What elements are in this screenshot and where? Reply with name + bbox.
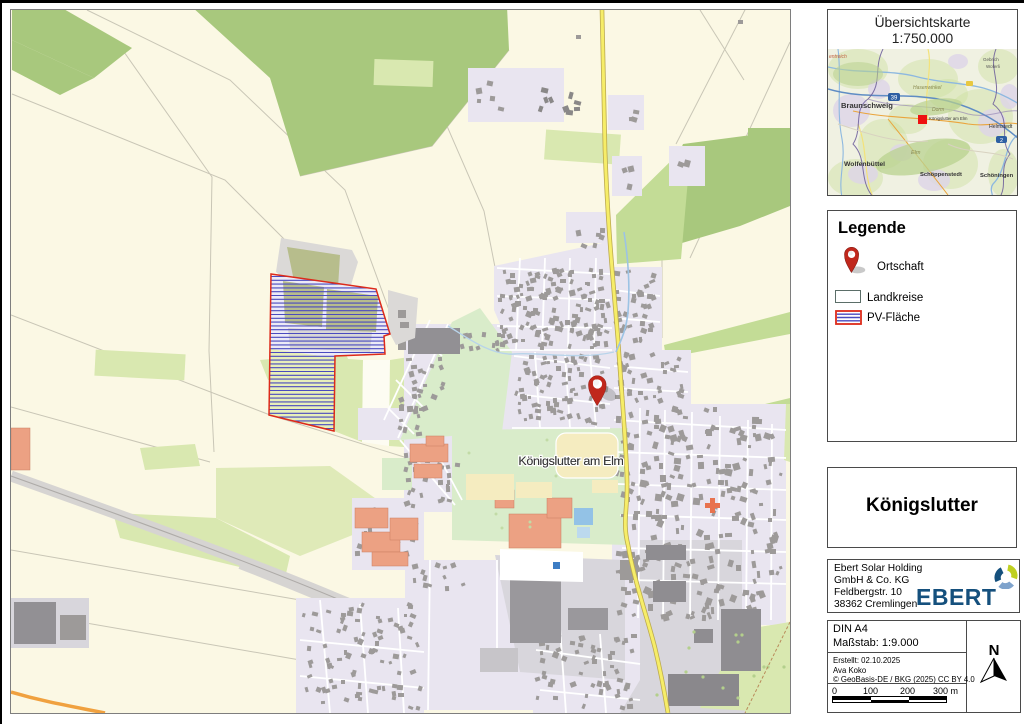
svg-text:Helmstedt: Helmstedt [989,124,1013,130]
svg-text:2: 2 [1000,138,1003,144]
svg-text:Hasenwinkel: Hasenwinkel [913,85,942,91]
svg-text:Königslutter am Elm: Königslutter am Elm [929,116,968,121]
svg-text:Elm: Elm [911,150,921,156]
svg-text:Braunschweig: Braunschweig [841,101,893,110]
svg-text:Gebrich: Gebrich [983,57,999,62]
svg-text:Dorm: Dorm [932,107,944,113]
svg-text:Königslutter am Elm: Königslutter am Elm [518,454,623,468]
svg-text:Woferli: Woferli [986,64,1000,69]
svg-text:N: N [989,642,1000,659]
svg-text:Schöningen: Schöningen [980,173,1014,179]
svg-text:entreich: entreich [829,54,847,60]
svg-text:Schöppenstedt: Schöppenstedt [920,172,962,178]
svg-text:Wolfenbüttel: Wolfenbüttel [844,161,885,168]
